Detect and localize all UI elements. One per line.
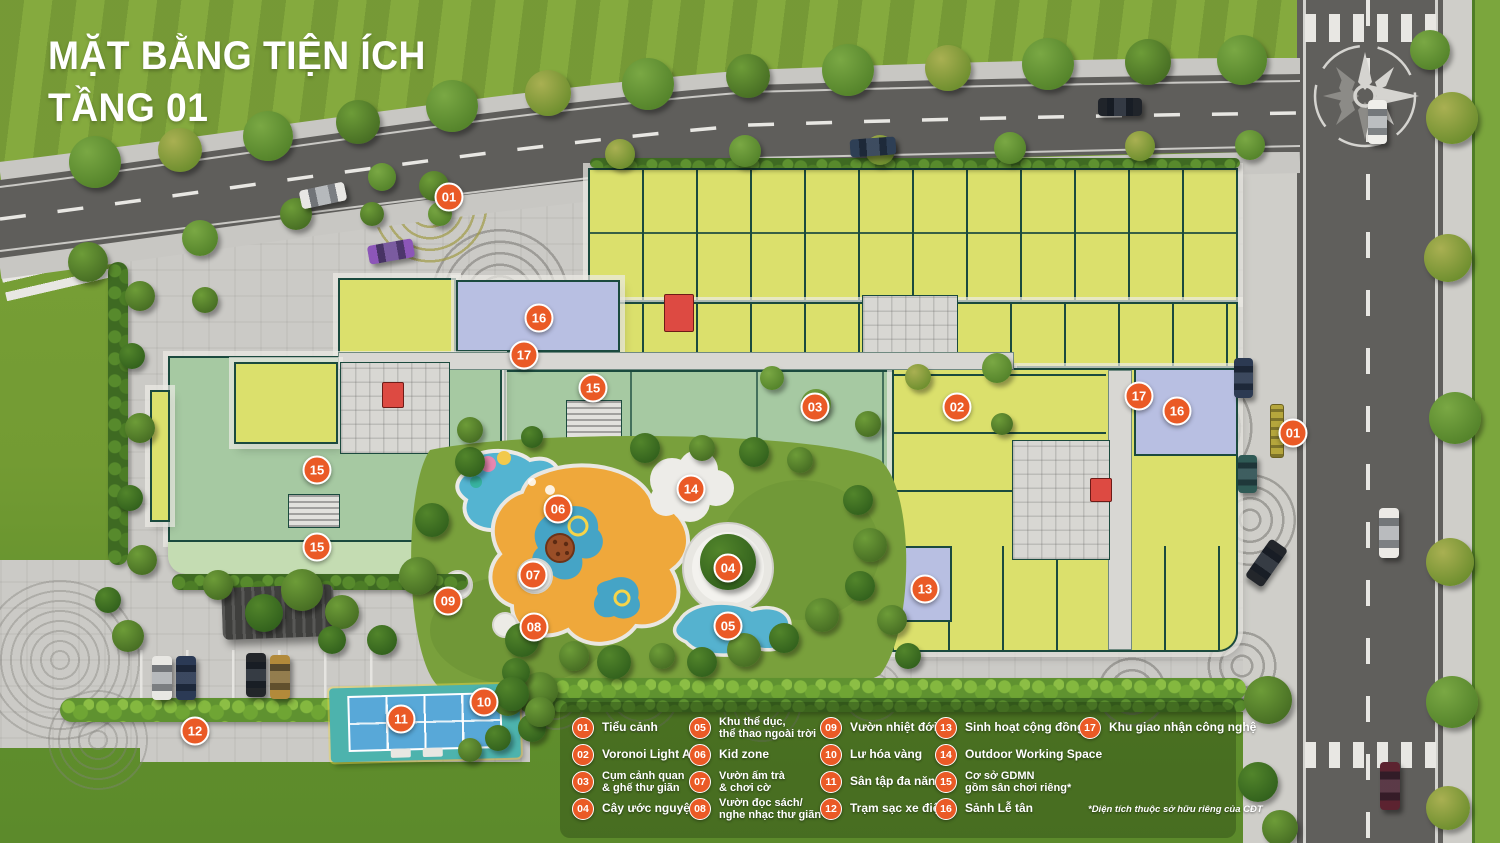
- court-bench: [423, 748, 443, 758]
- tree: [1426, 676, 1478, 728]
- plan-marker-16: 16: [525, 304, 554, 333]
- tree: [455, 447, 485, 477]
- tree: [1238, 762, 1278, 802]
- car: [270, 655, 290, 699]
- title-line-2: TẦNG 01: [48, 82, 426, 134]
- car: [1098, 98, 1142, 116]
- tree: [1426, 786, 1470, 830]
- legend-item-09: 09Vườn nhiệt đới: [820, 715, 951, 742]
- legend-item-11: 11Sân tập đa năng: [820, 769, 951, 796]
- hedge-west: [108, 262, 128, 565]
- legend-item-12: 12Trạm sạc xe điện*: [820, 796, 951, 823]
- legend-item-16: 16Sảnh Lễ tân: [935, 796, 1102, 823]
- car: [1380, 762, 1400, 810]
- plan-marker-15: 15: [303, 533, 332, 562]
- crosswalk-south: [1305, 742, 1437, 768]
- legend-item-15: 15Cơ sở GDMN gồm sân chơi riêng*: [935, 769, 1102, 796]
- legend-label-06: Kid zone: [719, 748, 769, 761]
- tree: [877, 605, 907, 635]
- tree: [822, 44, 874, 96]
- hedge-south: [520, 678, 1246, 700]
- tree: [845, 571, 875, 601]
- legend-item-06: 06Kid zone: [689, 742, 821, 769]
- legend-label-07: Vườn ấm trà & chơi cờ: [719, 770, 785, 794]
- legend-label-02: Voronoi Light Art: [602, 748, 699, 761]
- plan-marker-13: 13: [911, 575, 940, 604]
- tree: [525, 697, 555, 727]
- tree: [125, 281, 155, 311]
- legend-item-07: 07Vườn ấm trà & chơi cờ: [689, 769, 821, 796]
- legend-label-04: Cây ước nguyện: [602, 802, 697, 815]
- plan-marker-17: 17: [510, 341, 539, 370]
- legend-label-03: Cụm cảnh quan & ghế thư giãn: [602, 770, 685, 794]
- plan-marker-16: 16: [1163, 397, 1192, 426]
- tree: [739, 437, 769, 467]
- tree: [855, 411, 881, 437]
- tree: [630, 433, 660, 463]
- tree: [125, 413, 155, 443]
- tree: [119, 343, 145, 369]
- tree: [415, 503, 449, 537]
- legend-badge-01: 01: [572, 717, 594, 739]
- tree: [1429, 392, 1481, 444]
- legend-label-11: Sân tập đa năng: [850, 775, 943, 788]
- tree: [1262, 810, 1298, 843]
- legend-footnote: *Diện tích thuộc sở hữu riêng của CĐT: [1088, 804, 1263, 815]
- legend-item-17: 17Khu giao nhận công nghệ: [1079, 715, 1256, 742]
- tree: [1022, 38, 1074, 90]
- plan-marker-01: 01: [435, 183, 464, 212]
- west-wing-sliver: [150, 390, 170, 522]
- tree: [905, 364, 931, 390]
- tree: [1217, 35, 1267, 85]
- legend-badge-14: 14: [935, 744, 957, 766]
- legend-column-2: 05Khu thể dục, thể thao ngoài trời06Kid …: [689, 715, 821, 823]
- tree: [1125, 131, 1155, 161]
- legend-label-15: Cơ sở GDMN gồm sân chơi riêng*: [965, 770, 1071, 794]
- plan-marker-11: 11: [387, 705, 416, 734]
- tree: [182, 220, 218, 256]
- tree: [360, 202, 384, 226]
- car: [849, 136, 896, 157]
- car: [1368, 100, 1387, 144]
- legend-badge-11: 11: [820, 771, 842, 793]
- legend-label-14: Outdoor Working Space: [965, 748, 1102, 761]
- tree: [1125, 39, 1171, 85]
- legend-item-03: 03Cụm cảnh quan & ghế thư giãn: [572, 769, 699, 796]
- tree: [245, 594, 283, 632]
- unit-west-yellow: [234, 362, 338, 444]
- legend-badge-15: 15: [935, 771, 957, 793]
- plan-marker-12: 12: [181, 717, 210, 746]
- tree: [1426, 92, 1478, 144]
- legend-label-05: Khu thể dục, thể thao ngoài trời: [719, 716, 816, 740]
- tree: [843, 485, 873, 515]
- legend-item-04: 04Cây ước nguyện: [572, 796, 699, 823]
- legend-badge-12: 12: [820, 798, 842, 820]
- tree: [622, 58, 674, 110]
- tree: [895, 643, 921, 669]
- tree: [521, 426, 543, 448]
- plan-marker-03: 03: [801, 393, 830, 422]
- court-bench: [391, 748, 411, 758]
- legend-badge-17: 17: [1079, 717, 1101, 739]
- legend-badge-09: 09: [820, 717, 842, 739]
- legend-item-08: 08Vườn đọc sách/ nghe nhạc thư giãn: [689, 796, 821, 823]
- building-west-lobby-units: [338, 278, 456, 360]
- plan-marker-15: 15: [303, 456, 332, 485]
- tree: [525, 70, 571, 116]
- site-plan-poster: 0116171515150302171601140604070908051310…: [0, 0, 1500, 843]
- tree: [127, 545, 157, 575]
- plan-marker-01: 01: [1279, 419, 1308, 448]
- stairs-west: [288, 494, 340, 528]
- tree: [281, 569, 323, 611]
- tree: [458, 738, 482, 762]
- tree: [1426, 538, 1474, 586]
- tree: [805, 598, 839, 632]
- tree: [787, 447, 813, 473]
- legend-column-3: 09Vườn nhiệt đới10Lư hóa vàng11Sân tập đ…: [820, 715, 951, 823]
- plan-marker-05: 05: [714, 612, 743, 641]
- legend-badge-05: 05: [689, 717, 711, 739]
- plan-marker-09: 09: [434, 587, 463, 616]
- car: [152, 656, 172, 700]
- legend-label-09: Vườn nhiệt đới: [850, 721, 937, 734]
- tree: [1424, 234, 1472, 282]
- car: [176, 656, 196, 700]
- tree: [192, 287, 218, 313]
- elevator-east: [1090, 478, 1112, 502]
- plan-marker-14: 14: [677, 475, 706, 504]
- car: [1234, 358, 1253, 398]
- plan-marker-17: 17: [1125, 382, 1154, 411]
- plan-marker-06: 06: [544, 495, 573, 524]
- tree: [605, 139, 635, 169]
- tree: [69, 136, 121, 188]
- tree: [112, 620, 144, 652]
- plan-marker-08: 08: [520, 613, 549, 642]
- tree: [325, 595, 359, 629]
- legend-item-01: 01Tiểu cảnh: [572, 715, 699, 742]
- tree: [367, 625, 397, 655]
- tree: [318, 626, 346, 654]
- legend-item-10: 10Lư hóa vàng: [820, 742, 951, 769]
- tree: [203, 570, 233, 600]
- compass-rose-icon: [1305, 38, 1425, 156]
- legend-item-14: 14Outdoor Working Space: [935, 742, 1102, 769]
- tree: [559, 641, 589, 671]
- legend-label-10: Lư hóa vàng: [850, 748, 922, 761]
- tree: [1235, 130, 1265, 160]
- tree: [485, 725, 511, 751]
- legend-item-13: 13Sinh hoạt cộng đồng: [935, 715, 1102, 742]
- legend-badge-04: 04: [572, 798, 594, 820]
- tree: [726, 54, 770, 98]
- car: [1379, 508, 1399, 558]
- corridor-east: [1108, 370, 1132, 650]
- legend-item-02: 02Voronoi Light Art: [572, 742, 699, 769]
- tree: [95, 587, 121, 613]
- legend-badge-10: 10: [820, 744, 842, 766]
- elevator-north: [664, 294, 694, 332]
- plan-marker-07: 07: [519, 561, 548, 590]
- tree: [68, 242, 108, 282]
- legend-badge-07: 07: [689, 771, 711, 793]
- legend-label-08: Vườn đọc sách/ nghe nhạc thư giãn: [719, 797, 821, 821]
- tree: [994, 132, 1026, 164]
- page-title: MẶT BẰNG TIỆN ÍCH TẦNG 01: [48, 30, 426, 134]
- tree: [687, 647, 717, 677]
- tree: [158, 128, 202, 172]
- car: [246, 653, 266, 697]
- tree: [597, 645, 631, 679]
- plan-marker-15: 15: [579, 374, 608, 403]
- plan-marker-02: 02: [943, 393, 972, 422]
- tree: [495, 677, 529, 711]
- tree: [426, 80, 478, 132]
- tree: [729, 135, 761, 167]
- tree: [1410, 30, 1450, 70]
- legend-badge-13: 13: [935, 717, 957, 739]
- tree: [925, 45, 971, 91]
- tree: [760, 366, 784, 390]
- tree: [368, 163, 396, 191]
- tree: [982, 353, 1012, 383]
- legend-column-1: 01Tiểu cảnh02Voronoi Light Art03Cụm cảnh…: [572, 715, 699, 823]
- tree: [457, 417, 483, 443]
- building-north-units: [588, 168, 1238, 302]
- elevator-west: [382, 382, 404, 408]
- legend-badge-06: 06: [689, 744, 711, 766]
- tree: [769, 623, 799, 653]
- legend-label-17: Khu giao nhận công nghệ: [1109, 721, 1256, 734]
- legend-label-01: Tiểu cảnh: [602, 721, 658, 734]
- tree: [649, 643, 675, 669]
- plan-marker-10: 10: [470, 688, 499, 717]
- legend-label-13: Sinh hoạt cộng đồng: [965, 721, 1084, 734]
- legend-badge-08: 08: [689, 798, 711, 820]
- tree: [853, 528, 887, 562]
- tree: [117, 485, 143, 511]
- legend-badge-02: 02: [572, 744, 594, 766]
- legend-item-05: 05Khu thể dục, thể thao ngoài trời: [689, 715, 821, 742]
- legend-column-5: 17Khu giao nhận công nghệ: [1079, 715, 1256, 742]
- tree: [991, 413, 1013, 435]
- legend-badge-03: 03: [572, 771, 594, 793]
- legend-badge-16: 16: [935, 798, 957, 820]
- legend-label-16: Sảnh Lễ tân: [965, 802, 1033, 815]
- tree: [689, 435, 715, 461]
- legend-column-4: 13Sinh hoạt cộng đồng14Outdoor Working S…: [935, 715, 1102, 823]
- plan-marker-04: 04: [714, 554, 743, 583]
- car: [1238, 455, 1257, 493]
- title-line-1: MẶT BẰNG TIỆN ÍCH: [48, 30, 426, 82]
- tree: [399, 557, 437, 595]
